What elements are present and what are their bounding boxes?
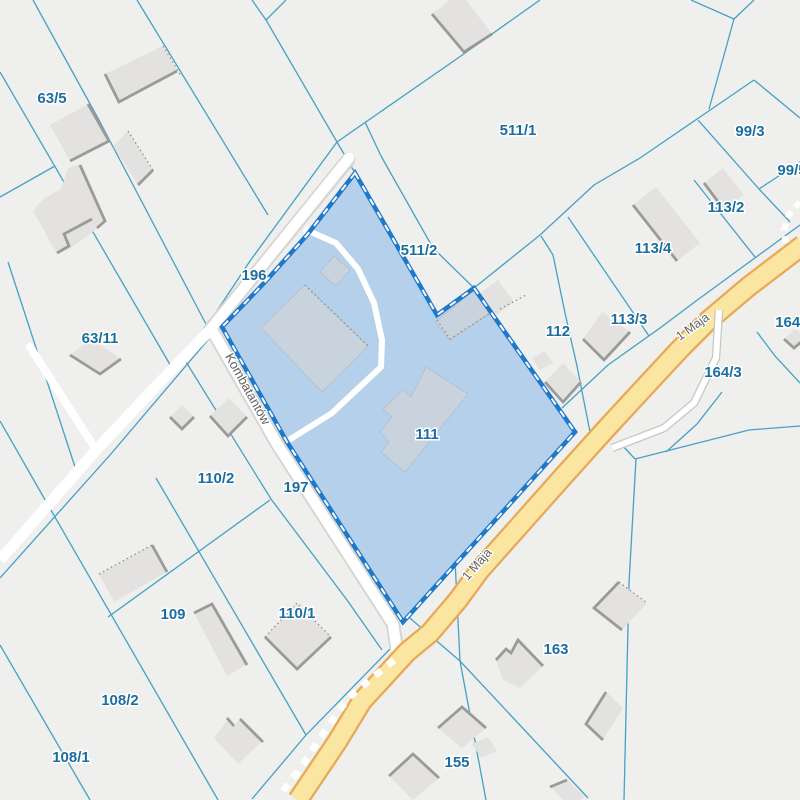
svg-text:113/2: 113/2 bbox=[708, 199, 745, 216]
svg-text:112: 112 bbox=[546, 323, 570, 340]
svg-text:197: 197 bbox=[283, 479, 308, 496]
svg-text:108/2: 108/2 bbox=[101, 692, 139, 709]
svg-text:109: 109 bbox=[160, 606, 185, 623]
svg-text:511/2: 511/2 bbox=[401, 242, 438, 259]
svg-text:108/1: 108/1 bbox=[52, 749, 90, 766]
svg-text:163: 163 bbox=[543, 641, 568, 658]
svg-text:164/1: 164/1 bbox=[775, 314, 800, 331]
svg-text:196: 196 bbox=[241, 267, 266, 284]
svg-text:63/11: 63/11 bbox=[82, 330, 119, 347]
svg-text:99/5: 99/5 bbox=[777, 162, 800, 179]
svg-text:164/3: 164/3 bbox=[704, 364, 742, 381]
svg-text:111: 111 bbox=[415, 426, 438, 443]
svg-text:511/1: 511/1 bbox=[500, 122, 537, 139]
svg-text:113/3: 113/3 bbox=[611, 311, 648, 328]
svg-text:110/2: 110/2 bbox=[198, 470, 235, 487]
svg-text:63/5: 63/5 bbox=[37, 90, 66, 107]
svg-text:155: 155 bbox=[444, 754, 469, 771]
svg-text:110/1: 110/1 bbox=[279, 605, 316, 622]
svg-text:99/3: 99/3 bbox=[735, 123, 764, 140]
svg-text:113/4: 113/4 bbox=[635, 240, 672, 257]
